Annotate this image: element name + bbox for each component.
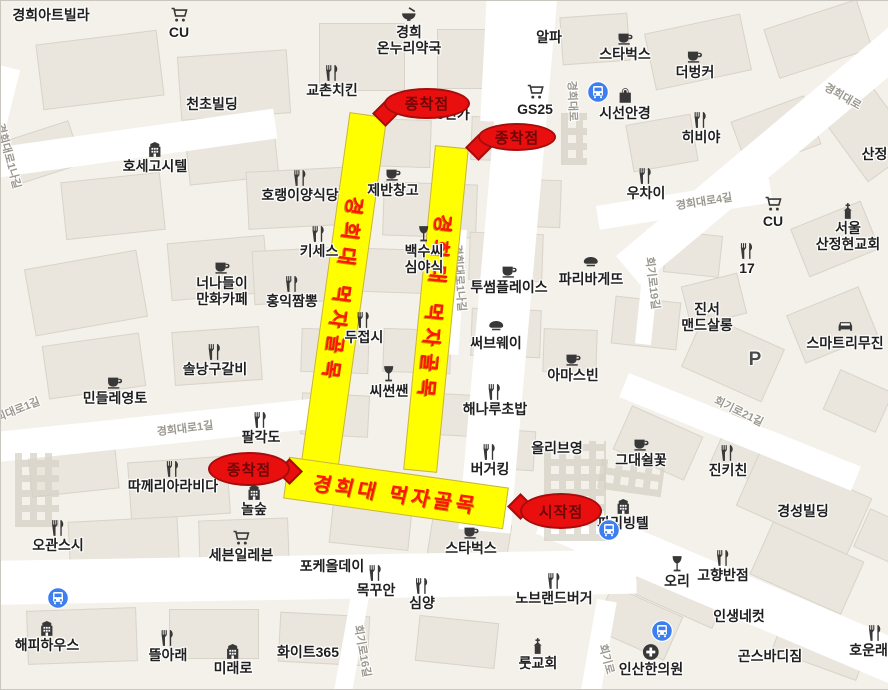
poi-label: 세븐일레븐 bbox=[209, 548, 273, 564]
map-poi: 세븐일레븐 bbox=[209, 529, 273, 564]
fork-icon bbox=[637, 167, 655, 185]
church-icon bbox=[529, 637, 547, 655]
map-poi: 인생네컷 bbox=[713, 609, 765, 625]
map-poi: 산정현 bbox=[862, 147, 888, 163]
map-poi: 오리 bbox=[664, 555, 690, 590]
map-poi: 스타벅스 bbox=[445, 522, 497, 557]
fork-icon bbox=[164, 460, 182, 478]
map-poi: 호랭이양식당 bbox=[261, 169, 338, 204]
poi-label: 너나들이 bbox=[196, 276, 248, 292]
poi-label: 스타벅스 bbox=[599, 47, 651, 63]
poi-label: 두접시 bbox=[345, 330, 384, 346]
wine-icon bbox=[380, 365, 398, 383]
poi-label: 키세스 bbox=[300, 244, 339, 260]
fork-icon bbox=[367, 564, 385, 582]
cafe-icon bbox=[106, 372, 124, 390]
fork-icon bbox=[481, 443, 499, 461]
building-icon bbox=[146, 140, 164, 158]
fork-icon bbox=[738, 242, 756, 260]
map-poi: 뜰아래 bbox=[149, 629, 188, 664]
poi-label: 미래로 bbox=[214, 661, 253, 677]
building-block bbox=[24, 250, 148, 337]
poi-label: 버거킹 bbox=[471, 462, 510, 478]
poi-label: 호랭이양식당 bbox=[261, 188, 338, 204]
poi-label: 만화카페 bbox=[196, 292, 248, 308]
cart-icon bbox=[170, 6, 188, 24]
map-poi: 씨썬쌘 bbox=[370, 365, 409, 400]
end-point-marker: 종착점 bbox=[208, 452, 290, 486]
poi-label: 백수씨 bbox=[405, 244, 444, 260]
marker-label: 종착점 bbox=[208, 452, 290, 486]
map-poi: 진키친 bbox=[709, 444, 748, 479]
poi-label: 스타벅스 bbox=[445, 541, 497, 557]
poi-label: 해피하우스 bbox=[15, 638, 79, 654]
poi-label: 민들레영토 bbox=[83, 391, 147, 407]
poi-label: 온누리약국 bbox=[377, 41, 441, 57]
poi-label: 목꾸안 bbox=[357, 583, 396, 599]
poi-label: 심야식 bbox=[405, 260, 444, 276]
poi-label: 알파 bbox=[536, 30, 562, 46]
car-icon bbox=[836, 317, 854, 335]
cafe-icon bbox=[462, 522, 480, 540]
map-poi: 호운래반 bbox=[849, 624, 888, 659]
map-poi: 스마트리무진 bbox=[806, 317, 883, 352]
fork-icon bbox=[866, 624, 884, 642]
building-block bbox=[35, 30, 164, 110]
poi-label: 더벙커 bbox=[676, 65, 715, 81]
poi-label: 따께리아라비다 bbox=[128, 479, 218, 495]
wine-icon bbox=[415, 225, 433, 243]
map-poi: 팔각도 bbox=[242, 411, 281, 446]
poi-label: 홍익짬뽕 bbox=[266, 294, 318, 310]
map-poi: CU bbox=[169, 6, 189, 41]
map-poi: CU bbox=[763, 195, 783, 230]
map-poi: 노브랜드버거 bbox=[515, 572, 592, 607]
marker-label: 종착점 bbox=[478, 123, 556, 151]
fork-icon bbox=[486, 383, 504, 401]
bus-icon bbox=[47, 587, 69, 609]
poi-label: 시선안경 bbox=[599, 106, 651, 122]
map-poi: 더벙커 bbox=[676, 46, 715, 81]
crosswalk bbox=[15, 453, 59, 527]
poi-label: 투썸플레이스 bbox=[470, 280, 547, 296]
start-point-marker: 시작점 bbox=[520, 493, 602, 529]
poi-label: 제반창고 bbox=[367, 183, 419, 199]
poi-label: 오리 bbox=[664, 574, 690, 590]
fork-icon bbox=[545, 572, 563, 590]
map-poi: 오관스시 bbox=[32, 519, 84, 554]
map-poi: 화이트365 bbox=[277, 645, 339, 661]
poi-label: 교촌치킨 bbox=[306, 83, 358, 99]
map-poi: 천초빌딩 bbox=[186, 97, 238, 113]
poi-label: 우차이 bbox=[627, 186, 666, 202]
fork-icon bbox=[206, 343, 224, 361]
map-poi: 경성빌딩 bbox=[777, 504, 829, 520]
fork-icon bbox=[310, 225, 328, 243]
fork-icon bbox=[692, 111, 710, 129]
end-point-marker: 종착점 bbox=[384, 88, 470, 119]
map-poi: 목꾸안 bbox=[357, 564, 396, 599]
poi-label: 팔각도 bbox=[242, 430, 281, 446]
map-poi: 따께리아라비다 bbox=[128, 460, 218, 495]
poi-label: 경성빌딩 bbox=[777, 504, 829, 520]
poi-label: 놀숲 bbox=[241, 502, 267, 518]
poi-label: 노브랜드버거 bbox=[515, 591, 592, 607]
road-label: 경희대로1길 bbox=[0, 393, 42, 429]
map-poi: 써브웨이 bbox=[470, 317, 522, 352]
map-poi: 고향반점 bbox=[697, 549, 749, 584]
hospital-icon bbox=[642, 643, 660, 661]
cafe-icon bbox=[213, 257, 231, 275]
map-poi: 너나들이만화카페 bbox=[196, 257, 248, 307]
map-poi: 민들레영토 bbox=[83, 372, 147, 407]
fork-icon bbox=[355, 311, 373, 329]
poi-label: 천초빌딩 bbox=[186, 97, 238, 113]
cafe-icon bbox=[686, 46, 704, 64]
map-poi: 경희온누리약국 bbox=[377, 6, 441, 56]
map-poi: 곤스바디짐 bbox=[738, 649, 802, 665]
map-poi: 교촌치킨 bbox=[306, 64, 358, 99]
bus-icon bbox=[587, 81, 609, 103]
poi-label: 서울 bbox=[835, 221, 861, 237]
cafe-icon bbox=[564, 349, 582, 367]
fork-icon bbox=[283, 275, 301, 293]
poi-label: GS25 bbox=[517, 102, 553, 118]
poi-label: 심양 bbox=[409, 596, 435, 612]
poi-label: 해나루초밥 bbox=[463, 402, 527, 418]
map-poi: 알파 bbox=[536, 30, 562, 46]
map-poi: 아마스빈 bbox=[547, 349, 599, 384]
poi-label: 포케올데이 bbox=[300, 559, 364, 575]
building-block bbox=[415, 615, 499, 669]
fork-icon bbox=[323, 64, 341, 82]
fork-icon bbox=[719, 444, 737, 462]
poi-label: 그대쉴꽃 bbox=[615, 453, 667, 469]
cafe-icon bbox=[384, 164, 402, 182]
poi-label: 맨드살롱 bbox=[681, 318, 733, 334]
map-poi: 인산한의원 bbox=[619, 643, 683, 678]
poi-label: 룻교회 bbox=[519, 656, 558, 672]
map-poi: 놀숲 bbox=[241, 483, 267, 518]
cafe-icon bbox=[632, 434, 650, 452]
end-point-marker: 종착점 bbox=[478, 123, 556, 151]
map-poi: 올리브영 bbox=[531, 441, 583, 457]
map-poi: 그대쉴꽃 bbox=[615, 434, 667, 469]
fork-icon bbox=[714, 549, 732, 567]
cart-icon bbox=[764, 195, 782, 213]
map-poi: 백수씨심야식 bbox=[405, 225, 444, 275]
poi-label: 오관스시 bbox=[32, 538, 84, 554]
poi-label: 파리바게뜨 bbox=[559, 272, 623, 288]
fork-icon bbox=[159, 629, 177, 647]
map-poi: 룻교회 bbox=[519, 637, 558, 672]
map-poi: 경희아트빌라 bbox=[12, 8, 89, 24]
fork-icon bbox=[49, 519, 67, 537]
poi-label: 산정현교회 bbox=[816, 237, 880, 253]
map-poi: 해피하우스 bbox=[15, 619, 79, 654]
poi-label: CU bbox=[763, 214, 783, 230]
building-icon bbox=[38, 619, 56, 637]
marker-label: 종착점 bbox=[384, 88, 470, 119]
map-poi: GS25 bbox=[517, 83, 553, 118]
poi-label: 솔낭구갈비 bbox=[183, 362, 247, 378]
map-poi: P bbox=[749, 349, 762, 370]
poi-label: 17 bbox=[739, 261, 755, 277]
map-poi: 서울산정현교회 bbox=[816, 202, 880, 252]
poi-label: CU bbox=[169, 25, 189, 41]
map-poi: 진서맨드살롱 bbox=[681, 302, 733, 333]
poi-label: 스마트리무진 bbox=[806, 336, 883, 352]
map-poi: 포케올데이 bbox=[300, 559, 364, 575]
poi-label: P bbox=[749, 349, 762, 370]
poi-label: 호운래반 bbox=[849, 643, 888, 659]
map-poi: 호세고시텔 bbox=[123, 140, 187, 175]
building-icon bbox=[224, 642, 242, 660]
poi-label: 뜰아래 bbox=[149, 648, 188, 664]
map-poi: 심양 bbox=[409, 577, 435, 612]
map-poi: 투썸플레이스 bbox=[470, 261, 547, 296]
poi-label: 경희 bbox=[396, 25, 422, 41]
marker-label: 시작점 bbox=[520, 493, 602, 529]
map-poi: 버거킹 bbox=[471, 443, 510, 478]
cart-icon bbox=[232, 529, 250, 547]
fork-icon bbox=[413, 577, 431, 595]
poi-label: 인생네컷 bbox=[713, 609, 765, 625]
road bbox=[480, 0, 521, 123]
map-poi: 키세스 bbox=[300, 225, 339, 260]
building-block bbox=[60, 172, 166, 240]
map-poi: 해나루초밥 bbox=[463, 383, 527, 418]
map-poi: 홍익짬뽕 bbox=[266, 275, 318, 310]
map-poi: 스타벅스 bbox=[599, 28, 651, 63]
poi-label: 올리브영 bbox=[531, 441, 583, 457]
bowl-icon bbox=[400, 6, 418, 24]
fork-icon bbox=[291, 169, 309, 187]
poi-label: 히비야 bbox=[682, 130, 721, 146]
bus-icon bbox=[651, 620, 673, 642]
map-poi: 우차이 bbox=[627, 167, 666, 202]
poi-label: 호세고시텔 bbox=[123, 159, 187, 175]
poi-label: 씨썬쌘 bbox=[370, 384, 409, 400]
map-poi: 솔낭구갈비 bbox=[183, 343, 247, 378]
map-poi: 히비야 bbox=[682, 111, 721, 146]
cafe-icon bbox=[616, 28, 634, 46]
bread-icon bbox=[487, 317, 505, 335]
wine-icon bbox=[668, 555, 686, 573]
poi-label: 화이트365 bbox=[277, 645, 339, 661]
poi-label: 써브웨이 bbox=[470, 336, 522, 352]
map-poi: 제반창고 bbox=[367, 164, 419, 199]
poi-label: 곤스바디짐 bbox=[738, 649, 802, 665]
building-icon bbox=[614, 497, 632, 515]
map-poi: 17 bbox=[738, 242, 756, 277]
map-poi: 미래로 bbox=[214, 642, 253, 677]
map-poi: 두접시 bbox=[345, 311, 384, 346]
poi-label: 아마스빈 bbox=[547, 368, 599, 384]
poi-label: 고향반점 bbox=[697, 568, 749, 584]
fork-icon bbox=[252, 411, 270, 429]
map-poi: 파리바게뜨 bbox=[559, 253, 623, 288]
cafe-icon bbox=[500, 261, 518, 279]
poi-label: 진키친 bbox=[709, 463, 748, 479]
poi-label: 경희아트빌라 bbox=[12, 8, 89, 24]
poi-label: 산정현 bbox=[862, 147, 888, 163]
poi-label: 진서 bbox=[694, 302, 720, 318]
map-canvas: 경희아트빌라CU경희온누리약국알파스타벅스더벙커천초빌딩교촌치킨8민가GS25시… bbox=[0, 0, 888, 690]
church-icon bbox=[839, 202, 857, 220]
poi-label: 인산한의원 bbox=[619, 662, 683, 678]
road-label: 경희대로 bbox=[564, 80, 581, 121]
building-block bbox=[823, 369, 888, 433]
bag-icon bbox=[616, 87, 634, 105]
bread-icon bbox=[582, 253, 600, 271]
cart-icon bbox=[526, 83, 544, 101]
